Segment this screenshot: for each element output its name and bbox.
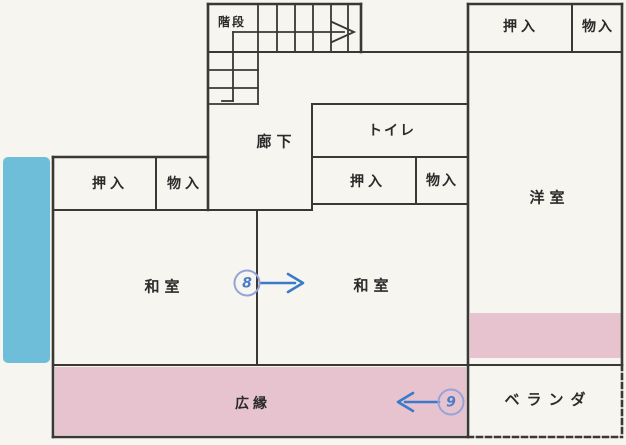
marker-9-badge: 9 (438, 389, 465, 416)
room-label-veranda: ベランダ (497, 393, 592, 408)
room-label-japanese-room-left: 和室 (139, 280, 184, 295)
room-label-closet-left: 押入 (88, 177, 128, 191)
stairs-up-arrow (222, 22, 354, 101)
floor-plan: 階段 押入 物入 廊下 トイレ 押入 物入 押入 物入 洋室 和室 和室 広縁 … (0, 0, 626, 445)
floor-plan-drawing (0, 0, 626, 445)
marker-8-badge: 8 (234, 270, 261, 297)
room-label-stairs: 階段 (216, 16, 246, 28)
interior-walls (53, 4, 622, 365)
room-label-hallway: 廊下 (251, 135, 296, 150)
room-label-japanese-room-right: 和室 (348, 279, 393, 294)
room-label-sun-porch: 広縁 (231, 397, 271, 411)
room-label-storage-center: 物入 (424, 174, 458, 188)
room-label-closet-top-right: 押入 (499, 20, 539, 34)
room-label-western-room: 洋室 (524, 191, 569, 206)
room-label-closet-center: 押入 (346, 175, 386, 189)
room-label-storage-left: 物入 (163, 177, 203, 191)
blue-highlight-strip (3, 157, 50, 363)
marker-8-arrow (260, 274, 303, 292)
room-label-storage-top-right: 物入 (580, 20, 614, 34)
western-room-pink-strip (470, 313, 621, 358)
room-label-toilet: トイレ (366, 124, 416, 138)
